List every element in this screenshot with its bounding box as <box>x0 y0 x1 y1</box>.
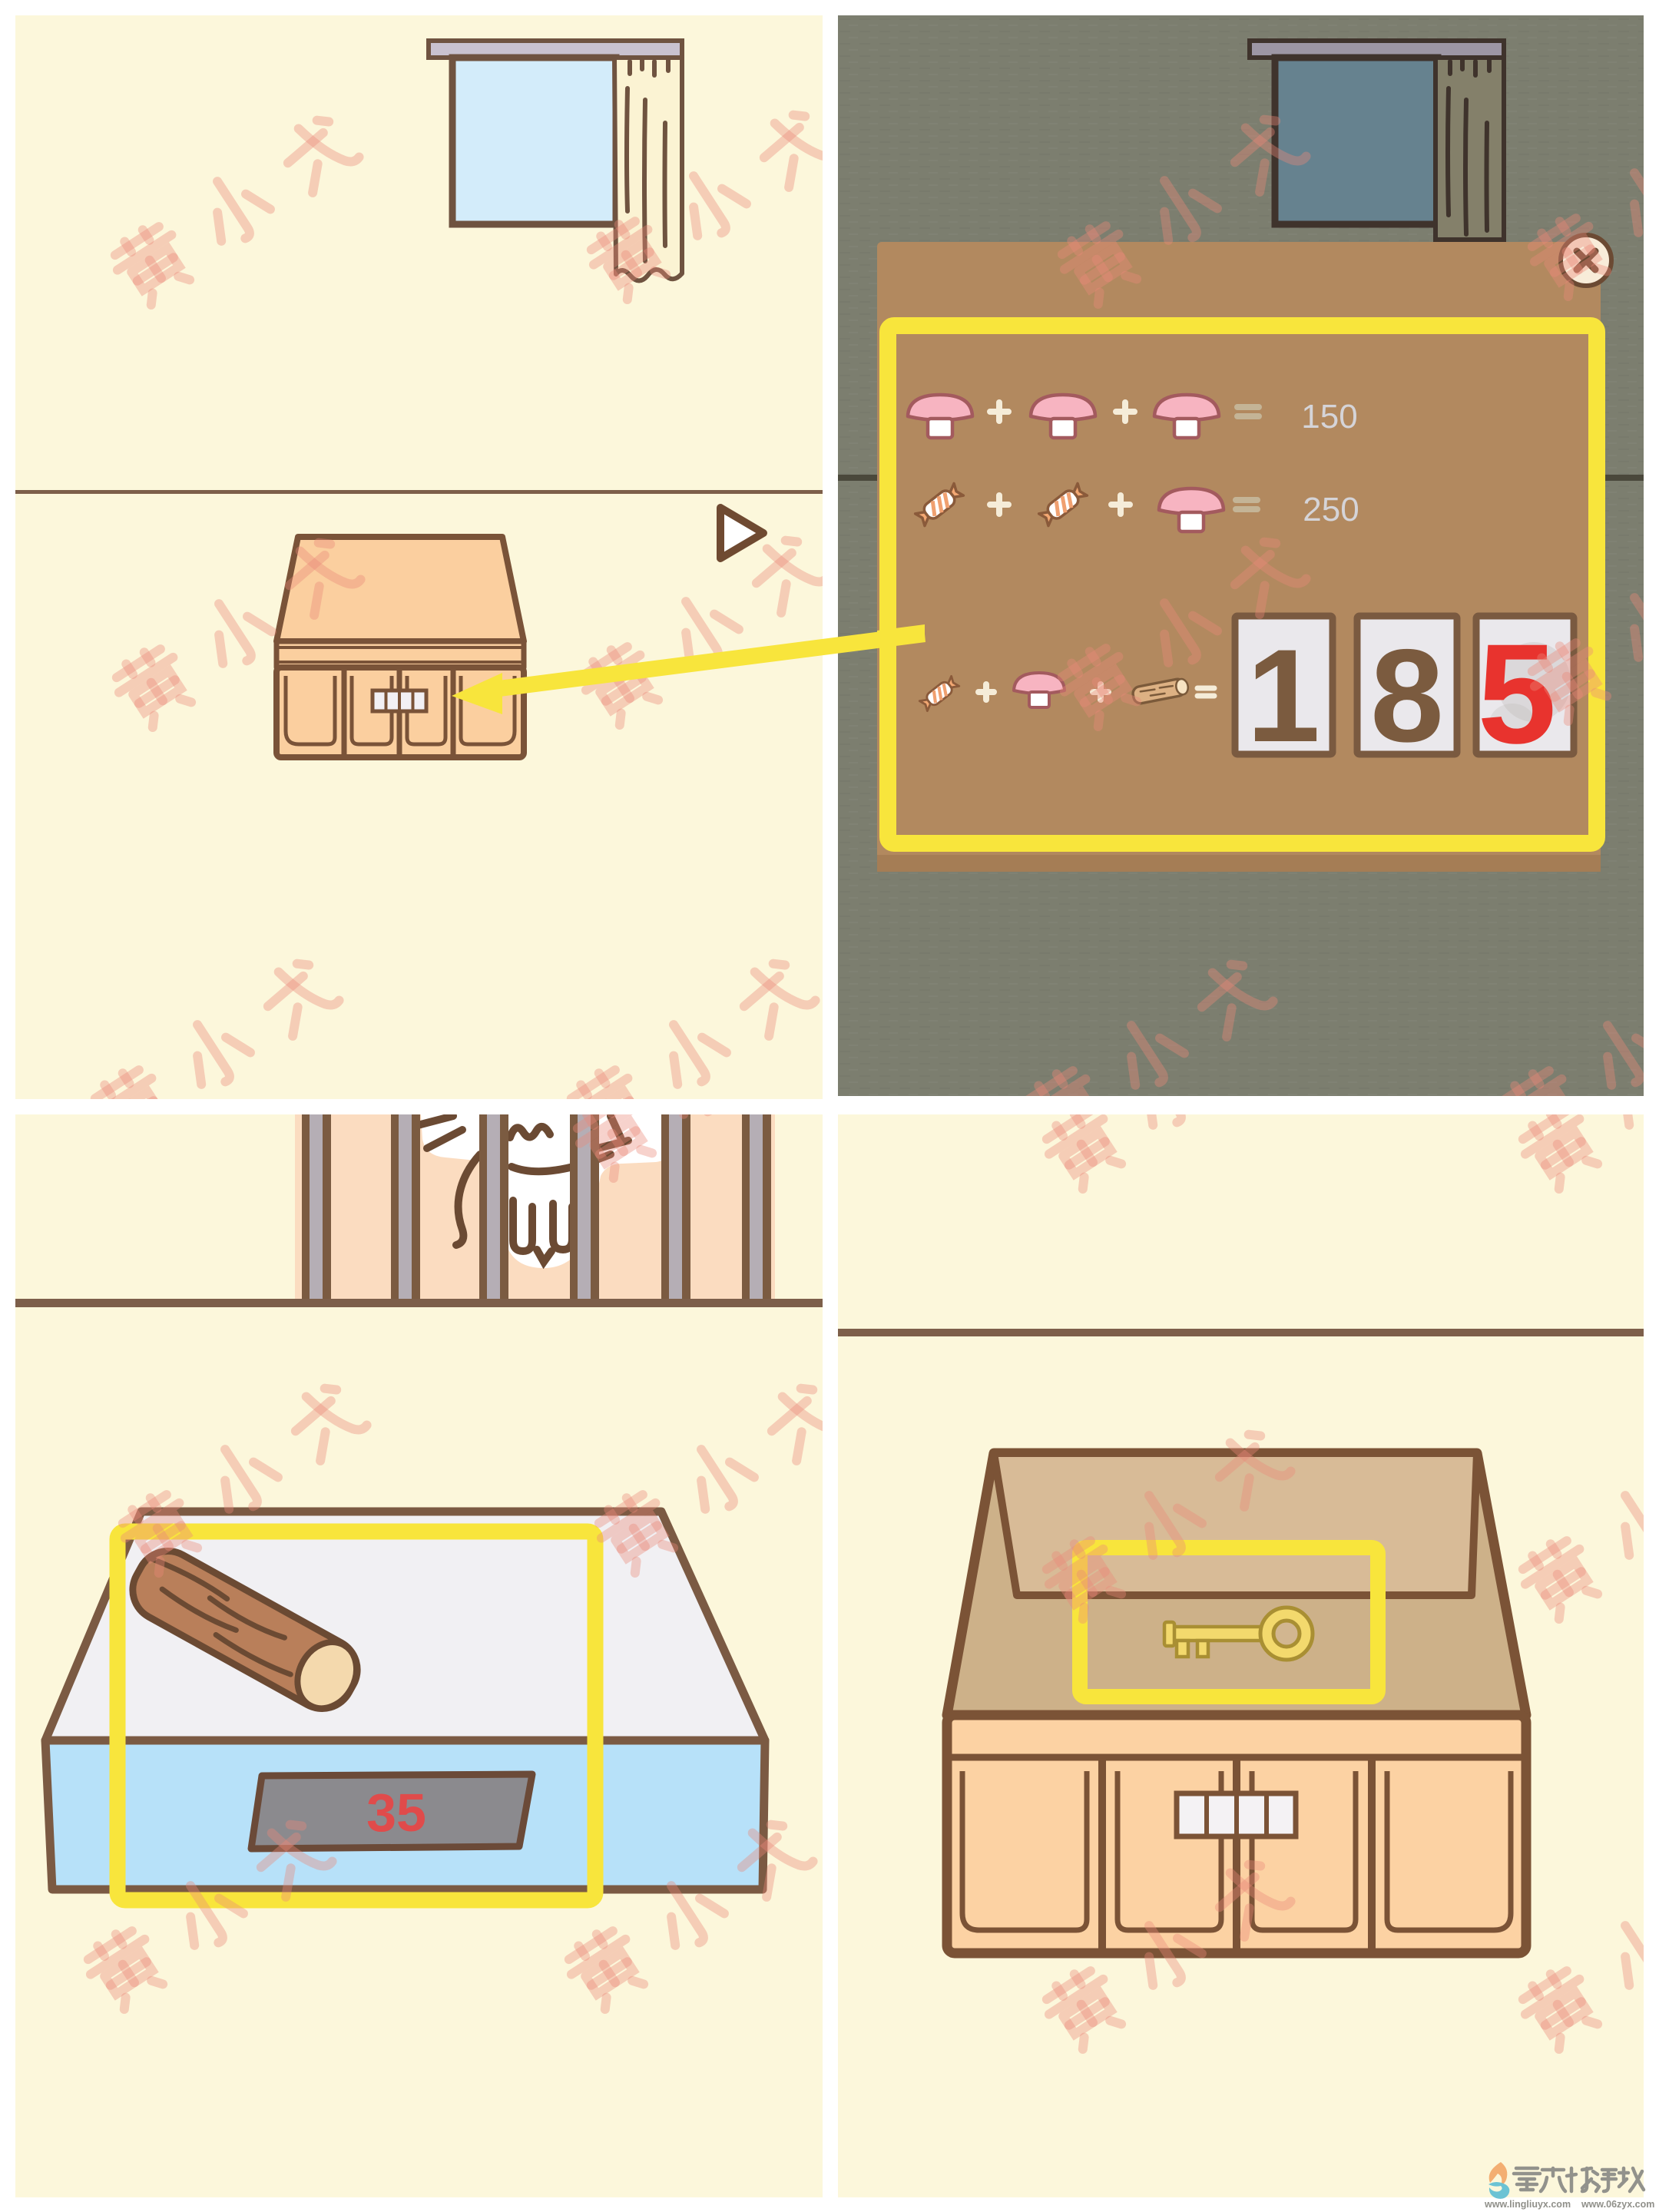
svg-text:www.lingliuyx.com www.06zyx: www.lingliuyx.com www.06zyx.com <box>1484 2199 1654 2210</box>
